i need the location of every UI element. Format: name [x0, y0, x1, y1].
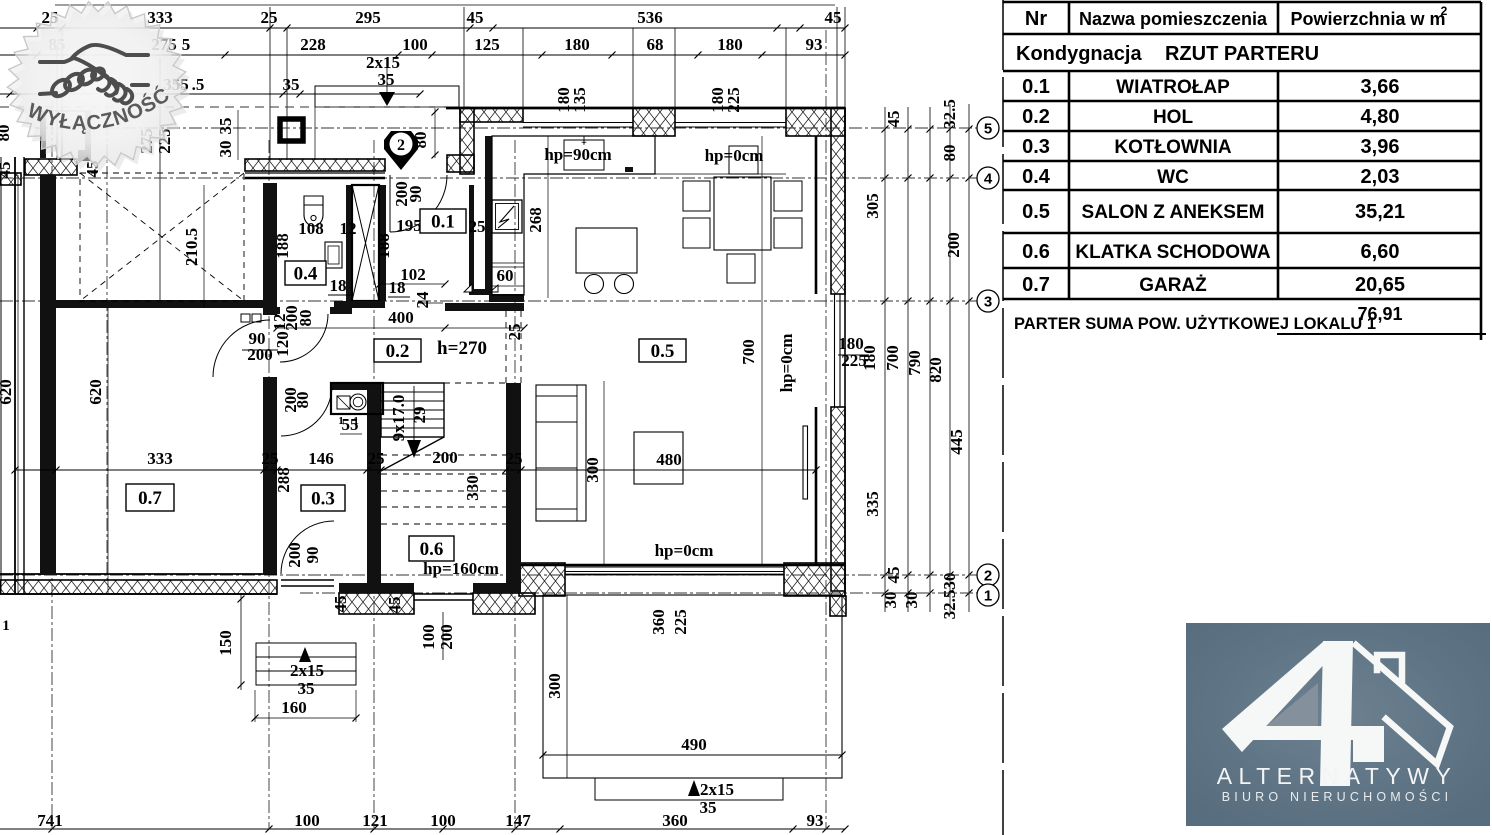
- svg-text:100: 100: [430, 811, 456, 830]
- svg-text:45: 45: [884, 111, 903, 128]
- svg-text:188: 188: [273, 233, 292, 259]
- svg-text:hp=0cm: hp=0cm: [705, 146, 764, 165]
- svg-text:620: 620: [0, 379, 15, 405]
- svg-text:25: 25: [368, 449, 385, 468]
- svg-text:KOTŁOWNIA: KOTŁOWNIA: [1114, 137, 1231, 158]
- svg-text:300: 300: [583, 457, 602, 483]
- svg-text:0.4: 0.4: [294, 264, 318, 285]
- svg-text:35: 35: [298, 679, 315, 698]
- svg-text:620: 620: [86, 379, 105, 405]
- svg-text:90: 90: [303, 547, 322, 564]
- svg-text:93: 93: [806, 35, 823, 54]
- svg-text:0.7: 0.7: [138, 488, 162, 509]
- svg-text:6,60: 6,60: [1361, 241, 1400, 263]
- svg-text:76,91: 76,91: [1357, 304, 1402, 324]
- svg-text:45: 45: [331, 596, 350, 613]
- svg-text:360: 360: [662, 811, 688, 830]
- svg-text:200: 200: [247, 345, 273, 364]
- svg-text:121: 121: [362, 811, 388, 830]
- svg-text:1: 1: [984, 588, 992, 605]
- svg-text:Nr: Nr: [1025, 8, 1047, 30]
- svg-text:30: 30: [216, 141, 235, 158]
- svg-text:h=270: h=270: [437, 338, 487, 359]
- svg-text:25: 25: [505, 324, 524, 341]
- svg-text:4: 4: [984, 171, 993, 188]
- svg-text:80: 80: [293, 392, 312, 409]
- svg-text:0.7: 0.7: [1022, 274, 1050, 296]
- svg-text:0.1: 0.1: [431, 212, 455, 233]
- svg-text:100: 100: [419, 624, 438, 650]
- svg-text:9x17.0: 9x17.0: [389, 395, 408, 442]
- svg-text:hp=0cm: hp=0cm: [655, 541, 714, 560]
- svg-text:536: 536: [637, 8, 663, 27]
- svg-text:32.5: 32.5: [940, 99, 959, 129]
- svg-text:100: 100: [402, 35, 428, 54]
- svg-text:35,21: 35,21: [1355, 201, 1405, 223]
- svg-text:741: 741: [37, 811, 63, 830]
- svg-text:32.530: 32.530: [940, 573, 959, 620]
- svg-text:300: 300: [545, 673, 564, 699]
- svg-text:2: 2: [397, 137, 405, 154]
- svg-text:102: 102: [400, 265, 426, 284]
- svg-text:60: 60: [497, 266, 514, 285]
- svg-text:25: 25: [506, 449, 523, 468]
- svg-text:25: 25: [469, 217, 486, 236]
- svg-text:55: 55: [342, 415, 359, 434]
- svg-text:HOL: HOL: [1153, 107, 1194, 128]
- svg-text:225: 225: [671, 609, 690, 635]
- svg-text:120: 120: [273, 331, 292, 357]
- svg-text:90: 90: [406, 186, 425, 203]
- svg-text:100: 100: [294, 811, 320, 830]
- svg-text:228: 228: [300, 35, 326, 54]
- svg-text:480: 480: [656, 450, 682, 469]
- svg-text:790: 790: [905, 350, 924, 376]
- svg-text:GARAŻ: GARAŻ: [1139, 275, 1207, 296]
- svg-text:200: 200: [432, 448, 458, 467]
- svg-text:0.6: 0.6: [1022, 241, 1050, 263]
- svg-text:WIATROŁAP: WIATROŁAP: [1116, 77, 1230, 98]
- svg-text:24: 24: [413, 291, 432, 309]
- svg-text:333: 333: [147, 8, 173, 27]
- svg-text:80: 80: [0, 125, 13, 142]
- svg-text:WC: WC: [1157, 167, 1189, 188]
- svg-text:268: 268: [526, 207, 545, 233]
- svg-text:35: 35: [700, 798, 717, 817]
- svg-text:.5: .5: [192, 75, 205, 94]
- svg-text:4,80: 4,80: [1361, 106, 1400, 128]
- svg-text:200: 200: [944, 232, 963, 258]
- svg-text:188: 188: [374, 233, 393, 259]
- svg-text:68: 68: [647, 35, 664, 54]
- svg-text:333: 333: [147, 449, 173, 468]
- svg-text:295: 295: [355, 8, 381, 27]
- svg-text:150: 150: [216, 630, 235, 656]
- svg-text:108: 108: [298, 219, 324, 238]
- svg-text:80: 80: [296, 310, 315, 327]
- svg-text:2,03: 2,03: [1361, 166, 1400, 188]
- svg-text:445: 445: [947, 429, 966, 455]
- svg-text:25: 25: [262, 449, 279, 468]
- svg-text:29: 29: [410, 407, 429, 424]
- svg-text:0.5: 0.5: [651, 341, 675, 362]
- svg-text:3: 3: [984, 294, 992, 311]
- svg-text:45: 45: [467, 8, 484, 27]
- svg-text:1: 1: [2, 618, 10, 634]
- svg-text:0.5: 0.5: [1022, 201, 1050, 223]
- svg-text:12: 12: [270, 314, 289, 331]
- svg-text:125: 125: [474, 35, 500, 54]
- svg-text:200: 200: [285, 542, 304, 568]
- svg-text:700: 700: [883, 345, 902, 371]
- svg-text:35: 35: [216, 118, 235, 135]
- svg-text:hp=0cm: hp=0cm: [777, 334, 796, 393]
- svg-text:2x15: 2x15: [290, 661, 324, 680]
- svg-text:0.2: 0.2: [386, 341, 410, 362]
- svg-text:0.2: 0.2: [1022, 106, 1050, 128]
- svg-text:330: 330: [463, 475, 482, 501]
- svg-text:195: 195: [396, 216, 422, 235]
- svg-text:147: 147: [505, 811, 531, 830]
- svg-text:30: 30: [881, 592, 900, 609]
- svg-text:12: 12: [340, 219, 357, 238]
- svg-text:Kondygnacja: Kondygnacja: [1016, 43, 1142, 65]
- svg-text:25: 25: [261, 8, 278, 27]
- svg-text:210.5: 210.5: [182, 228, 201, 266]
- svg-text:0.1: 0.1: [1022, 76, 1050, 98]
- svg-text:160: 160: [281, 698, 307, 717]
- svg-text:45: 45: [0, 162, 14, 179]
- svg-text:5: 5: [182, 35, 191, 54]
- svg-text:80: 80: [940, 145, 959, 162]
- svg-text:700: 700: [739, 339, 758, 365]
- svg-text:Powierzchnia w m: Powierzchnia w m: [1290, 9, 1445, 29]
- svg-text:200: 200: [437, 624, 456, 650]
- svg-text:30: 30: [902, 592, 921, 609]
- svg-text:490: 490: [681, 735, 707, 754]
- svg-text:180: 180: [717, 35, 743, 54]
- svg-text:18: 18: [330, 276, 347, 295]
- svg-text:2: 2: [1441, 4, 1448, 18]
- svg-text:KLATKA SCHODOWA: KLATKA SCHODOWA: [1075, 242, 1271, 263]
- svg-text:0.6: 0.6: [420, 539, 444, 560]
- svg-text:0.3: 0.3: [1022, 136, 1050, 158]
- svg-text:80: 80: [411, 132, 430, 149]
- svg-text:93: 93: [807, 811, 824, 830]
- svg-text:RZUT PARTERU: RZUT PARTERU: [1165, 43, 1319, 65]
- svg-text:335: 335: [863, 491, 882, 517]
- svg-text:3,96: 3,96: [1361, 136, 1400, 158]
- svg-text:ALTERNATYWY: ALTERNATYWY: [1217, 763, 1458, 789]
- svg-text:Nazwa pomieszczenia: Nazwa pomieszczenia: [1079, 9, 1268, 29]
- svg-text:BIURO NIERUCHOMOŚCI: BIURO NIERUCHOMOŚCI: [1222, 789, 1453, 804]
- svg-text:5: 5: [984, 121, 992, 138]
- svg-text:35: 35: [283, 75, 300, 94]
- svg-text:820: 820: [926, 357, 945, 383]
- svg-text:45: 45: [825, 8, 842, 27]
- svg-text:2x15: 2x15: [700, 780, 734, 799]
- svg-text:360: 360: [649, 609, 668, 635]
- svg-text:288: 288: [274, 467, 293, 493]
- svg-text:hp=160cm: hp=160cm: [423, 559, 499, 578]
- svg-text:3,66: 3,66: [1361, 76, 1400, 98]
- svg-text:2: 2: [984, 568, 992, 585]
- svg-text:SALON Z ANEKSEM: SALON Z ANEKSEM: [1082, 202, 1265, 223]
- svg-text:180: 180: [564, 35, 590, 54]
- svg-text:400: 400: [388, 308, 414, 327]
- svg-text:45: 45: [385, 597, 404, 614]
- svg-text:0.3: 0.3: [311, 489, 335, 510]
- svg-text:hp=90cm: hp=90cm: [544, 145, 611, 164]
- svg-text:20,65: 20,65: [1355, 274, 1405, 296]
- svg-text:146: 146: [308, 449, 334, 468]
- svg-text:PARTER SUMA POW. UŻYTKOWEJ LO: PARTER SUMA POW. UŻYTKOWEJ LOKALU 1: [1014, 315, 1376, 333]
- svg-text:0.4: 0.4: [1022, 166, 1051, 188]
- svg-text:305: 305: [863, 193, 882, 219]
